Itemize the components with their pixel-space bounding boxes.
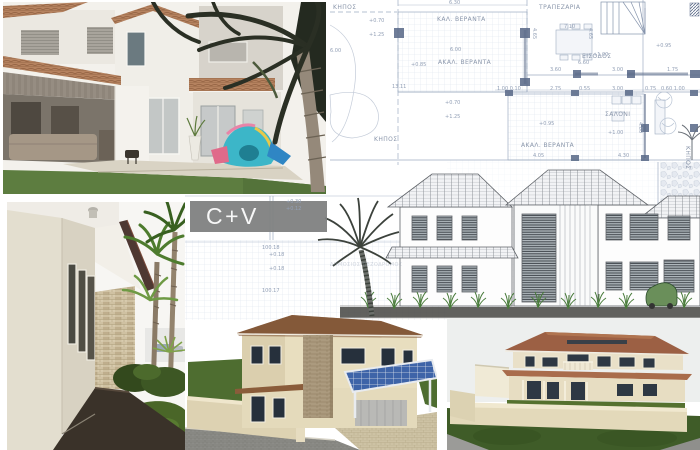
- dim-label: 4.30: [618, 153, 629, 159]
- room-label: ΣΑΛΟΝΙ: [605, 111, 630, 118]
- level-label: +0.12: [286, 206, 301, 212]
- level-label: +1.00: [608, 130, 623, 136]
- annex: [475, 365, 509, 398]
- level-label: +0.95: [656, 43, 671, 49]
- dim-label: 4.65: [531, 28, 537, 39]
- level-label: +1.00: [593, 52, 608, 58]
- photo-house-side: [7, 202, 185, 450]
- room-label: ΚΗΠΟΣ: [374, 136, 397, 143]
- dim-label: 4.80: [637, 122, 643, 133]
- dim-label: 7.10: [564, 24, 575, 30]
- dim-label: 4.05: [533, 153, 544, 159]
- dim-label: 3.00: [612, 86, 623, 92]
- outdoor-sofa: [9, 134, 97, 160]
- dim-label: 0.75: [645, 86, 656, 92]
- wall-near-face: [7, 210, 62, 450]
- room-label: ΔΗΜΟΣΙΟΣ ΠΕΖΟΔΡΟΜΟΣ: [330, 262, 402, 268]
- room-label: ΑΚΑΛ. ΒΕΡΑΝΤΑ: [438, 59, 491, 66]
- cv-logo: C+V: [190, 201, 327, 232]
- level-label: +0.30: [286, 199, 301, 205]
- tall-window: [127, 32, 145, 66]
- level-label: +1.25: [369, 32, 384, 38]
- render-right: [447, 318, 700, 450]
- elevation-house: [386, 170, 700, 306]
- dim-label: 0.60 1.00: [661, 86, 685, 92]
- dim-label: 6.60: [578, 60, 589, 66]
- level-label: +0.18: [269, 252, 284, 258]
- level-label: +0.95: [539, 121, 554, 127]
- grill: [125, 150, 139, 158]
- level-label: +0.18: [269, 266, 284, 272]
- porch-window: [51, 106, 79, 138]
- room-label: ΤΡΑΠΕΖΑΡΙΑ: [539, 4, 580, 11]
- level-label: +0.85: [411, 62, 426, 68]
- dim-label: 0.55: [579, 86, 590, 92]
- dim-label: 4.65: [587, 28, 593, 39]
- roof-solar-strip: [567, 340, 627, 344]
- dim-label: 2.75: [550, 86, 561, 92]
- balcony: [563, 362, 593, 370]
- room-label: ΚΑΛ. ΒΕΡΑΝΤΑ: [437, 16, 486, 23]
- level-label: +0.70: [369, 18, 384, 24]
- dim-label: 6.00: [330, 48, 341, 54]
- dim-label: 1.75: [667, 67, 678, 73]
- dim-label: 1.00 0.10: [497, 86, 521, 92]
- collage-canvas: C+V ΚΗΠΟΣ ΚΑΛ. ΒΕΡΑΝΤΑ ΤΡΑΠΕΖΑΡΙΑ ΑΚΑΛ. …: [0, 0, 700, 450]
- shutter-window: [21, 30, 59, 55]
- dim-label: 3.00: [612, 67, 623, 73]
- room-label: ΑΚΑΛ. ΒΕΡΑΝΤΑ: [521, 142, 574, 149]
- level-label: 100.18: [262, 245, 280, 251]
- shutter-window: [87, 27, 113, 54]
- render-middle: [185, 300, 437, 450]
- level-label: 100.17: [262, 288, 280, 294]
- dim-label: 6.30: [449, 0, 460, 6]
- porch-window: [11, 102, 41, 137]
- room-label: ΚΗΠΟΣ: [333, 4, 356, 11]
- level-label: +1.25: [445, 114, 460, 120]
- dim-label: 13.11: [392, 84, 406, 90]
- dim-label: 6.00: [450, 47, 461, 53]
- stone-feature: [303, 335, 333, 418]
- dim-label: 3.60: [550, 67, 561, 73]
- garage-door: [355, 400, 407, 426]
- room-label: ΚΗΠΟΣ: [684, 146, 691, 169]
- photo-house-rear: [3, 2, 326, 194]
- level-label: +0.70: [445, 100, 460, 106]
